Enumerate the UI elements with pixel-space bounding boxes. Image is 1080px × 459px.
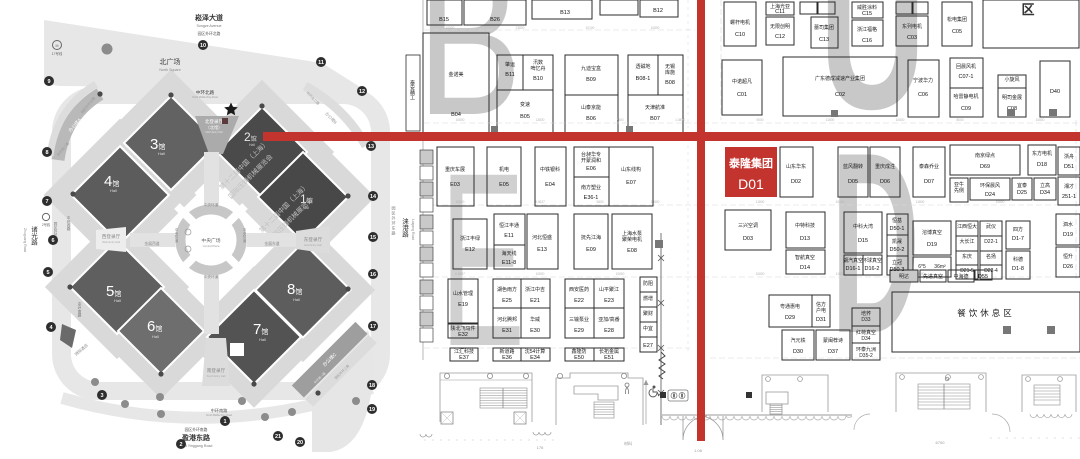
svg-text:环保晨风: 环保晨风 [980, 182, 1000, 189]
svg-text:长拓金属: 长拓金属 [599, 348, 619, 355]
svg-text:10800: 10800 [836, 200, 845, 204]
svg-text:金诺美: 金诺美 [448, 71, 463, 78]
svg-text:D03: D03 [743, 236, 753, 242]
svg-text:10800: 10800 [446, 26, 455, 30]
svg-text:Hall: Hall [152, 334, 159, 339]
svg-text:恒基: 恒基 [892, 217, 902, 224]
svg-text:6.0597: 6.0597 [455, 272, 465, 276]
svg-text:11800: 11800 [916, 200, 925, 204]
svg-text:D31: D31 [816, 317, 826, 323]
svg-text:D51: D51 [1064, 164, 1074, 170]
svg-text:19: 19 [369, 407, 375, 413]
svg-text:D50-1: D50-1 [890, 226, 905, 232]
svg-text:浙舟: 浙舟 [1064, 153, 1074, 160]
svg-text:6700: 6700 [936, 440, 946, 445]
svg-text:7500: 7500 [616, 118, 623, 122]
svg-text:D34: D34 [1040, 190, 1050, 196]
svg-text:江汇科技: 江汇科技 [454, 348, 474, 355]
svg-text:C15: C15 [862, 11, 872, 17]
svg-text:E36: E36 [502, 355, 512, 361]
svg-text:E29: E29 [574, 328, 584, 334]
svg-text:South Middle Ring Road: South Middle Ring Road [206, 414, 233, 417]
svg-text:上海水泵: 上海水泵 [622, 230, 642, 237]
svg-text:1.0800: 1.0800 [675, 118, 685, 122]
svg-text:16: 16 [370, 272, 376, 278]
svg-text:中央环道: 中央环道 [174, 227, 179, 243]
svg-text:E11-8: E11-8 [502, 260, 516, 266]
svg-text:11: 11 [318, 60, 324, 66]
svg-text:B12: B12 [653, 8, 663, 14]
svg-text:恒升: 恒升 [1063, 253, 1073, 260]
svg-text:啤忆舟: 啤忆舟 [530, 65, 545, 72]
svg-text:D22-1: D22-1 [984, 239, 998, 245]
svg-text:10800: 10800 [756, 272, 765, 276]
svg-text:C06: C06 [918, 92, 928, 98]
svg-text:2号线: 2号线 [42, 222, 51, 227]
svg-text:D14: D14 [800, 265, 810, 271]
svg-text:明达: 明达 [899, 273, 909, 280]
svg-text:7: 7 [45, 199, 48, 205]
svg-text:台昶华专: 台昶华专 [581, 151, 601, 158]
svg-text:Zhuguang Road: Zhuguang Road [23, 228, 27, 252]
svg-text:B05: B05 [520, 114, 530, 120]
svg-text:B07: B07 [650, 116, 660, 122]
svg-text:B09: B09 [586, 77, 596, 83]
svg-text:M: M [56, 44, 59, 48]
svg-text:泰隆集团: 泰隆集团 [728, 156, 773, 170]
svg-text:D33: D33 [861, 317, 870, 323]
svg-text:D15: D15 [858, 238, 868, 244]
svg-text:C10: C10 [735, 32, 745, 38]
svg-text:崧泽大道: 崧泽大道 [195, 13, 223, 22]
svg-text:E19: E19 [458, 302, 468, 308]
svg-text:9: 9 [47, 79, 50, 85]
svg-text:C13: C13 [819, 37, 829, 43]
svg-text:回晨风机: 回晨风机 [956, 63, 976, 70]
svg-text:E25: E25 [502, 298, 512, 304]
svg-text:环球真空: 环球真空 [862, 257, 882, 264]
svg-text:燃增: 燃增 [643, 295, 653, 302]
svg-text:Hall: Hall [158, 151, 165, 156]
svg-text:D18: D18 [1037, 162, 1047, 168]
svg-text:3: 3 [100, 393, 103, 399]
svg-text:山水管理: 山水管理 [453, 290, 473, 297]
svg-text:18: 18 [369, 383, 375, 389]
svg-text:机电: 机电 [499, 166, 509, 173]
svg-text:南方塑业: 南方塑业 [581, 184, 601, 191]
svg-text:D06: D06 [880, 179, 890, 185]
svg-text:泗水: 泗水 [1063, 221, 1073, 228]
svg-text:浙江中吉: 浙江中吉 [525, 286, 545, 293]
svg-text:D37: D37 [828, 349, 838, 355]
svg-text:浙江福格: 浙江福格 [857, 26, 877, 33]
svg-text:天津航准: 天津航准 [645, 104, 665, 111]
svg-text:6*5: 6*5 [918, 264, 926, 270]
svg-text:立高: 立高 [1040, 182, 1050, 189]
svg-text:E36-1: E36-1 [584, 195, 599, 201]
svg-text:诸光路: 诸光路 [30, 225, 38, 247]
svg-text:E03: E03 [450, 182, 460, 188]
svg-text:南登录厅: 南登录厅 [207, 367, 226, 373]
svg-text:山东华东: 山东华东 [786, 163, 806, 170]
svg-text:三兴空调: 三兴空调 [738, 222, 758, 229]
svg-text:金展东道: 金展东道 [264, 241, 279, 246]
svg-text:E28: E28 [604, 328, 614, 334]
svg-text:11800: 11800 [836, 272, 845, 276]
svg-text:汽元铁: 汽元铁 [790, 337, 805, 344]
svg-text:Songze Avenue: Songze Avenue [196, 24, 221, 28]
svg-text:环泰九洲: 环泰九洲 [856, 346, 876, 353]
svg-text:21: 21 [275, 434, 281, 440]
svg-text:251-1: 251-1 [1062, 194, 1076, 200]
svg-text:园区外环北路: 园区外环北路 [198, 31, 221, 36]
svg-text:10100: 10100 [586, 26, 595, 30]
svg-text:11800: 11800 [756, 200, 765, 204]
svg-text:亚加/高番: 亚加/高番 [598, 316, 619, 323]
svg-text:E06: E06 [586, 166, 596, 172]
svg-text:信方: 信方 [816, 301, 826, 308]
svg-text:E30: E30 [530, 328, 540, 334]
svg-text:B08: B08 [665, 80, 675, 86]
svg-text:13800: 13800 [536, 118, 545, 122]
svg-text:河北腾邦: 河北腾邦 [497, 316, 517, 323]
svg-text:B13: B13 [560, 10, 570, 16]
svg-text:东方电机: 东方电机 [1032, 150, 1052, 157]
svg-text:D40: D40 [1050, 89, 1060, 95]
svg-text:1.08: 1.08 [694, 448, 703, 453]
svg-text:威胜涂料: 威胜涂料 [857, 4, 877, 11]
svg-text:智航真空: 智航真空 [795, 254, 815, 261]
svg-text:小旋风: 小旋风 [1004, 76, 1019, 83]
svg-text:中央环道: 中央环道 [242, 227, 247, 243]
svg-text:10800: 10800 [536, 272, 545, 276]
svg-text:（北馆）: （北馆） [206, 124, 223, 131]
svg-text:D19: D19 [927, 242, 937, 248]
svg-text:北广场: 北广场 [160, 57, 181, 66]
svg-text:Hall: Hall [249, 143, 255, 147]
svg-text:哈雷静电机: 哈雷静电机 [953, 93, 978, 100]
svg-text:B10: B10 [533, 76, 543, 82]
svg-text:金展西道: 金展西道 [144, 241, 159, 246]
svg-text:中央环道: 中央环道 [204, 274, 219, 279]
svg-text:E09: E09 [586, 247, 596, 253]
svg-text:D07: D07 [924, 179, 934, 185]
svg-text:Laigang Road: Laigang Road [411, 219, 415, 240]
svg-text:10800: 10800 [996, 200, 1005, 204]
svg-text:中铁银科: 中铁银科 [540, 166, 560, 173]
svg-text:8000: 8000 [956, 118, 963, 122]
svg-text:D16-1: D16-1 [846, 266, 861, 272]
svg-text:大长江: 大长江 [959, 238, 974, 245]
svg-text:重庆车展: 重庆车展 [445, 166, 465, 173]
svg-text:中环西路: 中环西路 [66, 215, 71, 231]
svg-text:D30: D30 [793, 349, 803, 355]
svg-text:盈港东路: 盈港东路 [181, 433, 211, 442]
svg-text:D1-8: D1-8 [1012, 266, 1024, 272]
svg-text:D25: D25 [1017, 190, 1027, 196]
svg-text:防阻: 防阻 [643, 280, 653, 287]
svg-text:C02: C02 [835, 92, 845, 98]
svg-text:12: 12 [359, 89, 365, 95]
svg-text:C05: C05 [952, 29, 962, 35]
svg-text:15: 15 [370, 235, 376, 241]
svg-text:B26: B26 [490, 17, 500, 23]
svg-text:E23: E23 [604, 298, 614, 304]
svg-text:D29: D29 [785, 315, 795, 321]
svg-text:D16-2: D16-2 [865, 266, 880, 272]
svg-text:中央环道: 中央环道 [204, 202, 219, 207]
svg-text:红荷真空: 红荷真空 [856, 329, 876, 336]
svg-text:先进真空: 先进真空 [923, 273, 943, 280]
svg-text:D35-2: D35-2 [859, 353, 873, 359]
svg-text:8: 8 [45, 150, 48, 156]
svg-text:D34: D34 [861, 336, 870, 342]
svg-text:176: 176 [537, 445, 544, 450]
svg-text:北登录厅: 北登录厅 [205, 118, 224, 125]
svg-text:螺杆电机: 螺杆电机 [730, 19, 750, 26]
svg-text:中宜: 中宜 [643, 325, 653, 332]
svg-text:东列电机: 东列电机 [902, 23, 922, 30]
svg-text:10800: 10800 [456, 118, 465, 122]
svg-text:10800: 10800 [616, 272, 625, 276]
svg-text:B15: B15 [439, 17, 449, 23]
svg-text:E07: E07 [626, 180, 636, 186]
svg-text:南京绿点: 南京绿点 [975, 152, 995, 159]
svg-text:D13: D13 [800, 236, 810, 242]
svg-text:四方: 四方 [1013, 226, 1023, 233]
svg-text:D05: D05 [848, 179, 858, 185]
svg-text:B06: B06 [586, 116, 596, 122]
svg-text:中科大湾: 中科大湾 [853, 223, 873, 230]
svg-text:东庆: 东庆 [962, 253, 972, 260]
svg-text:肇运: 肇运 [505, 61, 515, 68]
svg-text:E34: E34 [530, 355, 540, 361]
svg-text:蕾司集团: 蕾司集团 [814, 24, 834, 31]
svg-text:E22: E22 [574, 298, 584, 304]
svg-text:Hall: Hall [114, 298, 121, 303]
svg-text:明司金展: 明司金展 [1002, 94, 1022, 101]
svg-text:透磁地: 透磁地 [635, 63, 650, 70]
svg-text:E32: E32 [458, 332, 468, 338]
svg-text:变速: 变速 [520, 101, 530, 108]
svg-text:园区外环南路: 园区外环南路 [185, 427, 208, 432]
svg-text:13800: 13800 [516, 26, 525, 30]
svg-text:E11: E11 [504, 233, 513, 239]
svg-text:B11: B11 [505, 72, 514, 78]
svg-text:浙江丰绿: 浙江丰绿 [460, 235, 480, 242]
svg-text:海天线: 海天线 [501, 250, 516, 257]
svg-text:涞港路: 涞港路 [401, 218, 409, 239]
svg-text:恒江丰通: 恒江丰通 [499, 222, 519, 229]
svg-text:山东线构: 山东线构 [621, 166, 641, 173]
svg-text:2: 2 [179, 442, 182, 448]
svg-text:D69: D69 [980, 164, 990, 170]
svg-text:湖色雨方: 湖色雨方 [497, 286, 517, 293]
svg-text:1: 1 [223, 419, 226, 425]
svg-text:20: 20 [297, 440, 303, 446]
svg-text:无锡: 无锡 [665, 63, 675, 70]
svg-text:D24: D24 [985, 192, 995, 198]
svg-text:广东德成减速产业集团: 广东德成减速产业集团 [815, 75, 865, 82]
svg-text:E13: E13 [537, 247, 547, 253]
svg-text:E50: E50 [574, 355, 584, 361]
svg-text:C11: C11 [775, 9, 785, 15]
svg-text:C07-1: C07-1 [959, 74, 974, 80]
svg-text:Hall: Hall [259, 337, 266, 342]
svg-text:D26: D26 [1063, 264, 1073, 270]
svg-text:North Square: North Square [159, 68, 180, 72]
svg-text:中诺超凡: 中诺超凡 [732, 78, 752, 85]
svg-text:North Middle Ring Road: North Middle Ring Road [192, 96, 218, 99]
svg-text:抚先江海: 抚先江海 [581, 234, 601, 241]
svg-text:松电集团: 松电集团 [947, 16, 967, 23]
svg-text:E37: E37 [459, 355, 469, 361]
svg-text:餐饮休息区: 餐饮休息区 [957, 308, 1015, 318]
svg-text:亚牛: 亚牛 [954, 181, 964, 188]
svg-text:9000: 9000 [756, 118, 763, 122]
svg-text:North Entry Hall: North Entry Hall [206, 131, 223, 134]
svg-text:培荞: 培荞 [861, 310, 871, 317]
svg-text:园区外环东路: 园区外环东路 [392, 205, 397, 236]
svg-text:材料: 材料 [624, 440, 632, 446]
svg-text:泰安精工: 泰安精工 [409, 79, 415, 100]
svg-text:10800: 10800 [456, 200, 465, 204]
svg-text:中环南路: 中环南路 [211, 407, 229, 414]
svg-text:17: 17 [370, 324, 376, 330]
svg-text:无限创明: 无限创明 [770, 23, 790, 30]
svg-text:溶博真空: 溶博真空 [922, 229, 942, 236]
svg-text:10: 10 [200, 43, 206, 49]
svg-text:C03: C03 [907, 35, 917, 41]
svg-text:D02: D02 [791, 179, 801, 185]
svg-text:武仪: 武仪 [986, 223, 996, 230]
svg-text:泰森乔业: 泰森乔业 [919, 163, 939, 170]
svg-text:D50-3: D50-3 [890, 267, 905, 273]
svg-text:中环南路: 中环南路 [77, 301, 82, 317]
svg-text:17号线: 17号线 [52, 51, 63, 56]
svg-text:蒙闽荐诗: 蒙闽荐诗 [823, 337, 843, 344]
svg-text:D55: D55 [978, 274, 988, 280]
svg-text:湖汽真空: 湖汽真空 [843, 257, 863, 264]
svg-text:B08-1: B08-1 [636, 76, 651, 82]
svg-text:中海德: 中海德 [953, 273, 968, 280]
svg-text:D01: D01 [738, 176, 764, 192]
svg-text:重庆成泩: 重庆成泩 [875, 163, 895, 170]
svg-text:Central Plaza: Central Plaza [203, 244, 220, 248]
svg-text:中央广场: 中央广场 [201, 237, 220, 244]
svg-text:江西恒大: 江西恒大 [957, 223, 977, 230]
svg-text:新道路: 新道路 [499, 348, 514, 355]
svg-text:科德: 科德 [1013, 256, 1023, 263]
svg-text:宜泰: 宜泰 [1017, 182, 1027, 189]
svg-text:E27: E27 [643, 343, 653, 349]
svg-text:D50-2: D50-2 [890, 247, 905, 253]
svg-text:D1-7: D1-7 [1012, 236, 1024, 242]
svg-text:蓝风翻转: 蓝风翻转 [843, 163, 863, 170]
svg-text:South Entry Hall: South Entry Hall [207, 374, 226, 378]
svg-text:山平聚江: 山平聚江 [599, 286, 619, 293]
svg-text:库施: 库施 [665, 69, 675, 76]
svg-text:10800: 10800 [651, 26, 660, 30]
svg-text:立冠: 立冠 [892, 259, 902, 266]
svg-text:C16: C16 [862, 38, 872, 44]
svg-text:先侧: 先侧 [954, 187, 964, 194]
svg-text:西登录厅: 西登录厅 [102, 233, 121, 240]
svg-text:East Entry Hall: East Entry Hall [304, 243, 322, 247]
svg-text:聚荣电机: 聚荣电机 [622, 236, 642, 243]
svg-text:E05: E05 [499, 182, 509, 188]
svg-text:E31: E31 [502, 328, 512, 334]
svg-text:粤通惠电: 粤通惠电 [780, 303, 800, 310]
svg-text:Hall: Hall [110, 188, 117, 193]
svg-text:三输泵业: 三输泵业 [569, 316, 589, 323]
svg-text:E51: E51 [604, 355, 614, 361]
svg-text:九迪宝盒: 九迪宝盒 [581, 65, 601, 72]
svg-text:鑫隆防: 鑫隆防 [571, 348, 586, 355]
svg-text:9.0637: 9.0637 [535, 200, 545, 204]
svg-text:中特科技: 中特科技 [795, 222, 815, 229]
svg-text:西安医药: 西安医药 [569, 286, 589, 293]
svg-text:C12: C12 [775, 34, 785, 40]
svg-text:10800: 10800 [651, 200, 660, 204]
svg-text:C01: C01 [737, 92, 747, 98]
svg-text:D19: D19 [1063, 232, 1073, 238]
svg-text:河北恒盛: 河北恒盛 [532, 234, 552, 241]
svg-text:开蒙润和: 开蒙润和 [581, 157, 601, 164]
svg-text:华威: 华威 [530, 316, 540, 323]
svg-text:陕北飞马件: 陕北飞马件 [450, 325, 475, 332]
svg-text:山泰京能: 山泰京能 [581, 104, 601, 111]
svg-text:11800: 11800 [826, 118, 835, 122]
svg-text:E21: E21 [530, 298, 540, 304]
svg-text:West Entry Hall: West Entry Hall [102, 240, 120, 244]
svg-text:E12: E12 [465, 247, 475, 253]
svg-text:E08: E08 [627, 248, 637, 254]
svg-text:10800: 10800 [1036, 118, 1045, 122]
svg-text:C09: C09 [961, 106, 971, 112]
svg-text:名扬: 名扬 [986, 253, 996, 260]
svg-text:E04: E04 [545, 182, 555, 188]
svg-text:14: 14 [370, 194, 377, 200]
svg-text:聚财: 聚财 [643, 310, 653, 317]
svg-text:湘才: 湘才 [1064, 183, 1074, 190]
svg-text:汛数: 汛数 [533, 59, 543, 66]
svg-text:10800: 10800 [896, 118, 905, 122]
svg-text:沈54计算: 沈54计算 [525, 348, 546, 355]
svg-text:36m²: 36m² [934, 264, 946, 270]
svg-text:13: 13 [368, 144, 374, 150]
svg-text:6: 6 [51, 238, 54, 244]
svg-text:区: 区 [1021, 2, 1034, 17]
svg-text:凯晟: 凯晟 [892, 238, 902, 245]
svg-text:中环北路: 中环北路 [196, 89, 215, 96]
svg-text:5: 5 [46, 270, 49, 276]
svg-text:户电: 户电 [816, 307, 826, 314]
svg-text:Hall: Hall [293, 297, 300, 302]
svg-text:东登录厅: 东登录厅 [304, 236, 323, 242]
svg-text:宁波华力: 宁波华力 [913, 77, 933, 84]
